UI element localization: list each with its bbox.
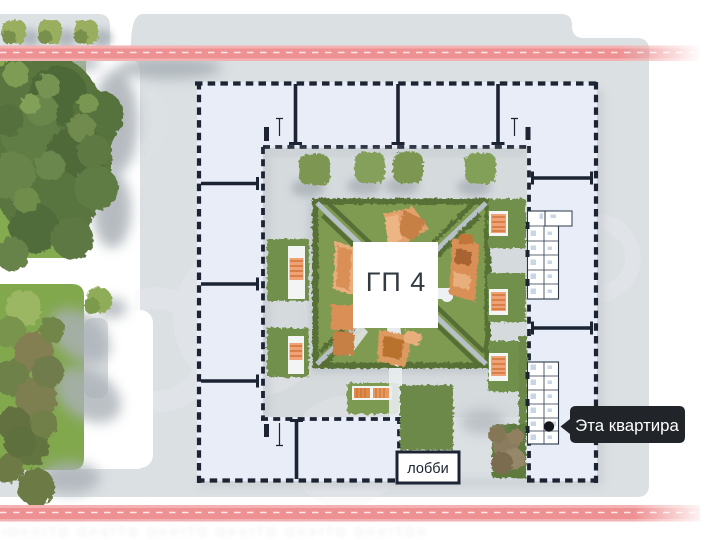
svg-text:ГП 4: ГП 4 bbox=[366, 267, 427, 297]
svg-text:лобби: лобби bbox=[407, 461, 448, 477]
svg-text:Эта квартира: Эта квартира bbox=[575, 416, 679, 435]
svg-text:ΙΟΛVΙΤΟ ΟΛVΙΤΟ ΟΛVΙΤΟ ΟΛVΙΤΟ Ο: ΙΟΛVΙΤΟ ΟΛVΙΤΟ ΟΛVΙΤΟ ΟΛVΙΤΟ ΟΛVΙΤΟ ΟΛVΙ… bbox=[2, 525, 428, 539]
